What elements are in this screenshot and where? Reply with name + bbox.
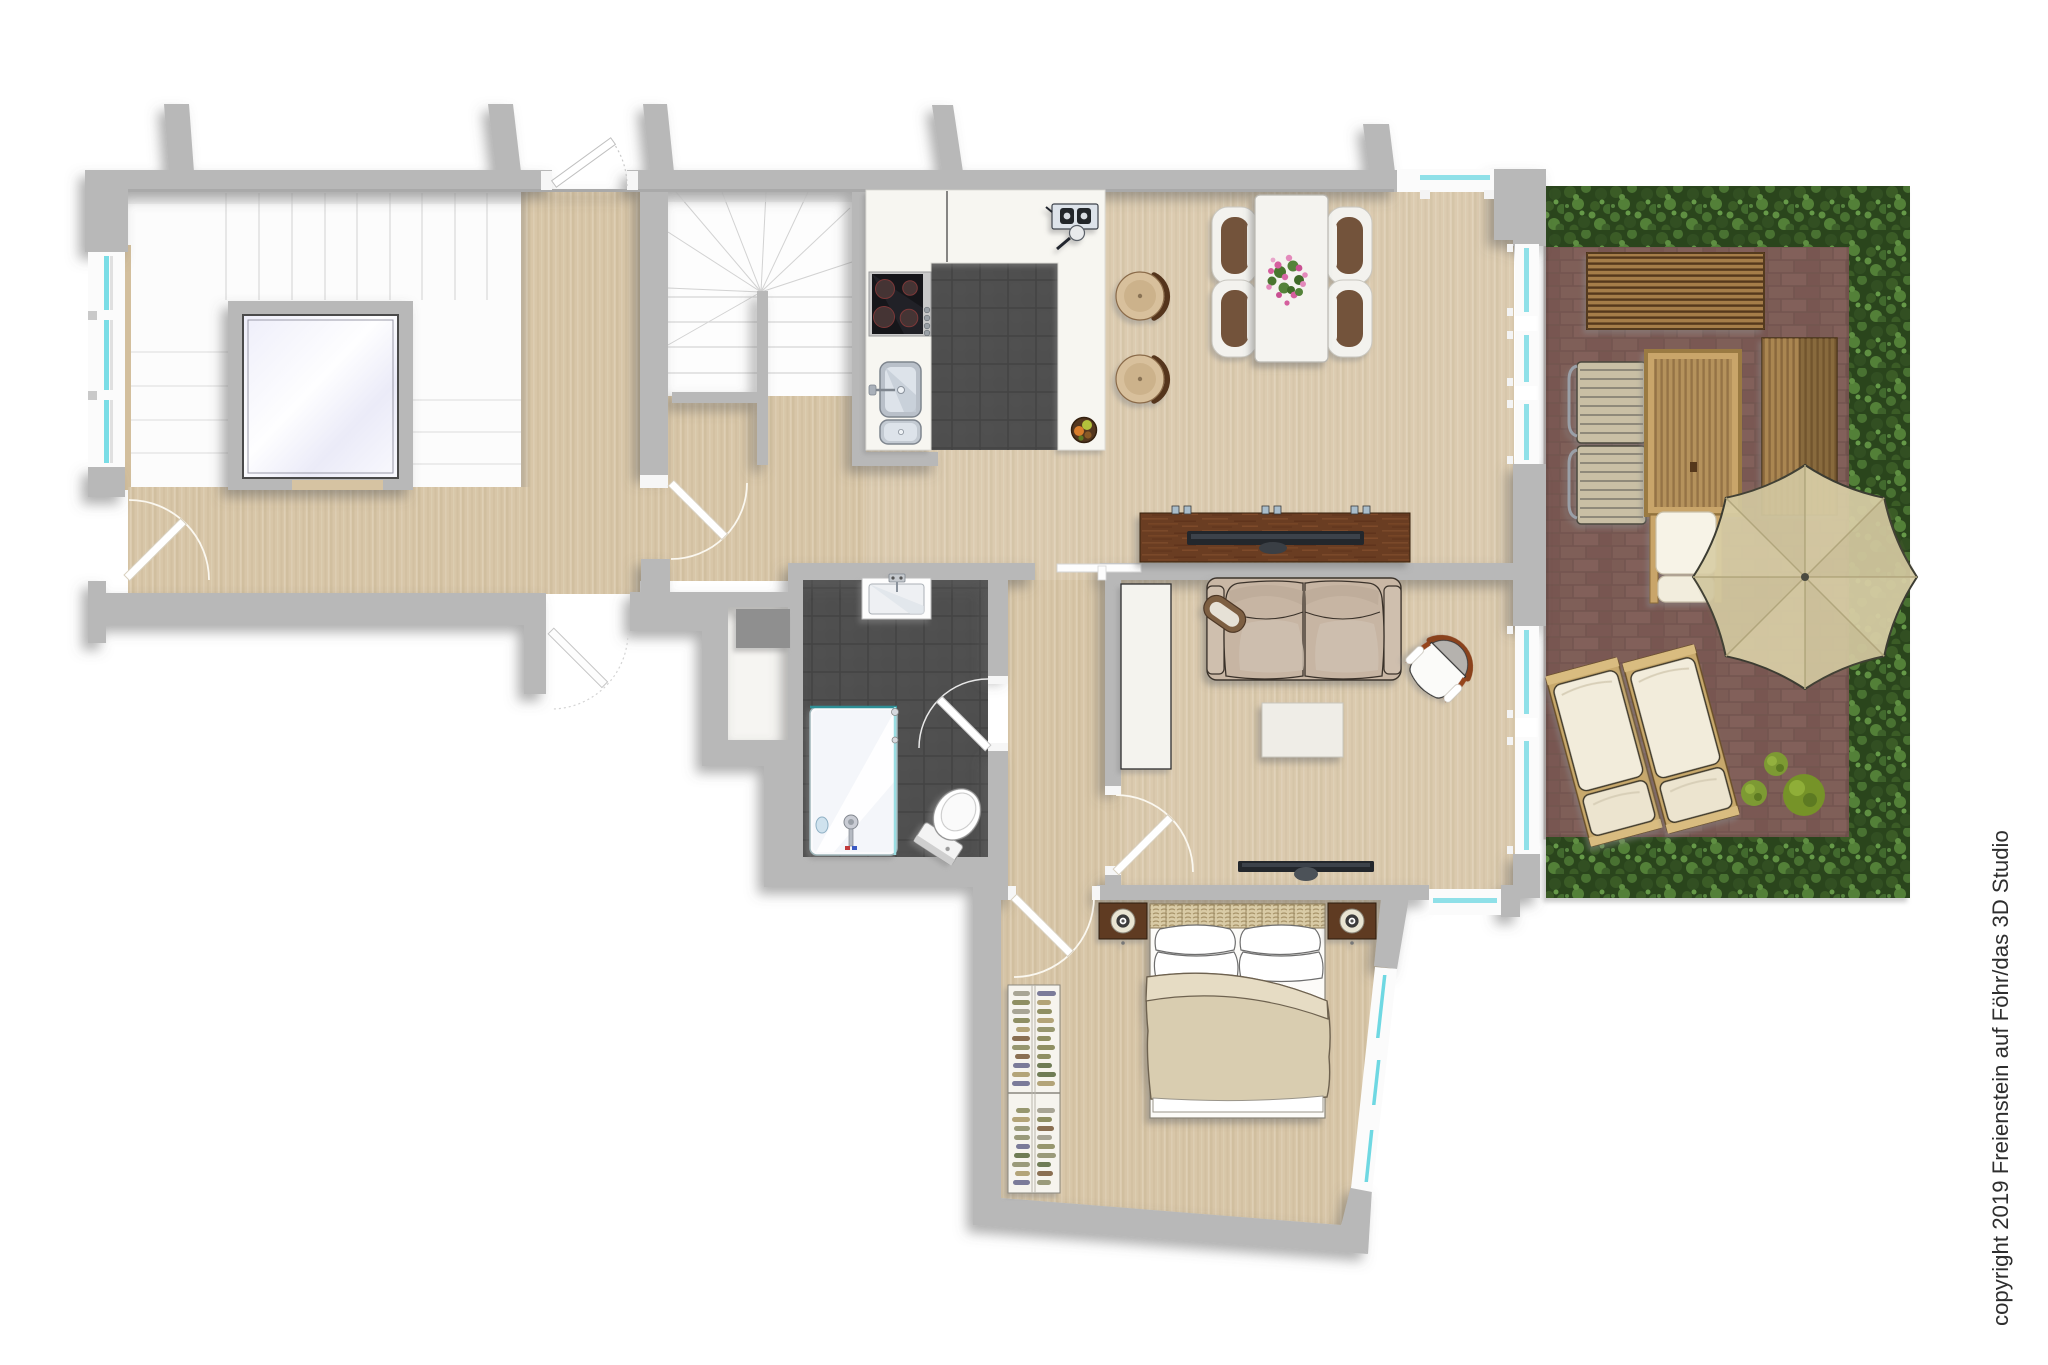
svg-text:copyright 2019 Freienstein auf: copyright 2019 Freienstein auf Föhr/das … (1988, 830, 2013, 1326)
